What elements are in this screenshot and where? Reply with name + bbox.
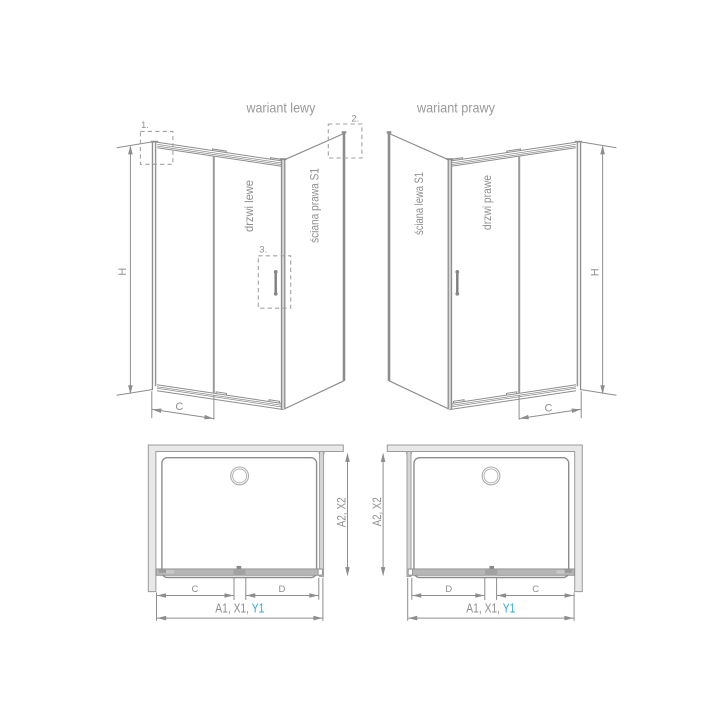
svg-text:C: C	[191, 584, 198, 595]
svg-text:A1, X1, Y1: A1, X1, Y1	[215, 602, 264, 616]
svg-text:drzwi prawe: drzwi prawe	[480, 175, 494, 230]
svg-text:D: D	[445, 584, 452, 595]
svg-text:ściana prawa S1: ściana prawa S1	[307, 168, 321, 243]
svg-text:D: D	[278, 584, 285, 595]
svg-text:A2, X2: A2, X2	[334, 497, 348, 527]
svg-text:ściana lewa S1: ściana lewa S1	[412, 172, 426, 235]
svg-text:wariant lewy: wariant lewy	[245, 100, 315, 115]
svg-text:A2, X2: A2, X2	[370, 497, 384, 526]
svg-text:C: C	[175, 401, 183, 413]
svg-text:3.: 3.	[259, 244, 267, 255]
svg-text:2.: 2.	[351, 113, 359, 124]
svg-text:1.: 1.	[141, 120, 149, 131]
svg-text:A1, X1, Y1: A1, X1, Y1	[466, 602, 515, 616]
svg-text:drzwi lewe: drzwi lewe	[242, 180, 256, 232]
svg-text:wariant prawy: wariant prawy	[416, 100, 495, 115]
svg-text:H: H	[589, 268, 601, 276]
svg-text:H: H	[117, 268, 129, 276]
svg-text:C: C	[532, 584, 539, 595]
svg-text:C: C	[545, 402, 553, 414]
